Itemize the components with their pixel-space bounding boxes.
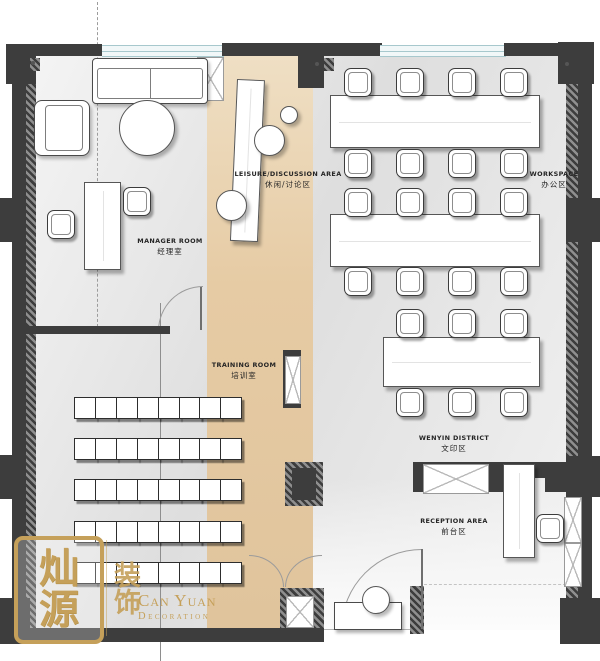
- office-chair: [448, 149, 476, 178]
- office-chair: [500, 309, 528, 338]
- office-chair: [47, 210, 75, 239]
- training-chair: [179, 562, 201, 584]
- workstation-desk-3: [383, 337, 540, 387]
- logo-wordmark: Can Yuan Decoration: [138, 592, 258, 623]
- office-chair: [396, 309, 424, 338]
- window-x: [564, 543, 582, 587]
- training-chair: [95, 397, 117, 419]
- training-chair: [137, 479, 159, 501]
- door-leaf-manager: [200, 287, 202, 330]
- door-stop-dot: [315, 62, 319, 66]
- door-leaf-reception: [421, 549, 423, 629]
- training-chair: [95, 438, 117, 460]
- label-workspace: WORKSPACE 办公区: [494, 170, 600, 190]
- office-chair: [123, 187, 151, 216]
- training-chair: [74, 397, 96, 419]
- training-chair: [158, 521, 180, 543]
- training-chair: [199, 562, 221, 584]
- label-manager-room: MANAGER ROOM 经理室: [110, 237, 230, 257]
- wall-divider-core: [292, 468, 316, 500]
- training-chair: [116, 479, 138, 501]
- training-chair: [199, 521, 221, 543]
- window-band-left: [102, 45, 224, 57]
- wall-corner-bottom-right: [560, 598, 600, 644]
- office-chair: [448, 188, 476, 217]
- boundary-dashed: [424, 584, 576, 585]
- armchair: [34, 100, 90, 156]
- office-chair: [396, 149, 424, 178]
- label-wenyin-district: WENYIN DISTRICT 文印区: [394, 434, 514, 454]
- logo-seal: 灿 源: [14, 536, 104, 644]
- wall-right-hatch: [566, 242, 578, 456]
- logo-ornament: 装饰: [106, 540, 141, 636]
- workstation-desk-1: [330, 95, 540, 148]
- training-chair: [220, 438, 242, 460]
- wall-pilaster: [0, 455, 14, 499]
- wall-segment: [222, 43, 382, 56]
- label-training-room: TRAINING ROOM 培训室: [184, 361, 304, 381]
- workstation-desk-2: [330, 214, 540, 267]
- office-chair: [448, 309, 476, 338]
- office-chair: [344, 68, 372, 97]
- training-chair: [220, 397, 242, 419]
- wall-segment: [487, 462, 503, 492]
- training-chair: [137, 397, 159, 419]
- office-chair: [500, 388, 528, 417]
- cabinet-x: [286, 596, 314, 628]
- wall-pilaster: [0, 198, 14, 242]
- training-chair: [116, 438, 138, 460]
- training-chair: [74, 479, 96, 501]
- office-chair: [536, 514, 564, 543]
- wall-manager-training: [26, 326, 170, 334]
- label-reception-area: RECEPTION AREA 前台区: [394, 517, 514, 537]
- training-chair: [116, 397, 138, 419]
- training-chair: [95, 479, 117, 501]
- round-table: [119, 100, 175, 156]
- wall-segment: [545, 462, 576, 492]
- wall-pilaster: [566, 198, 600, 242]
- training-chair: [199, 438, 221, 460]
- office-chair: [500, 267, 528, 296]
- floor-plan: MANAGER ROOM 经理室 LEISURE/DISCUSSION AREA…: [0, 0, 600, 661]
- logo-seal-char: 源: [39, 590, 79, 631]
- office-chair: [448, 267, 476, 296]
- training-chair: [74, 438, 96, 460]
- stool: [216, 190, 247, 221]
- training-chair: [179, 521, 201, 543]
- office-chair: [500, 68, 528, 97]
- office-chair: [396, 267, 424, 296]
- logo-seal-char: 灿: [39, 549, 79, 590]
- training-chair: [158, 562, 180, 584]
- office-chair: [344, 267, 372, 296]
- door-stop-dot: [565, 62, 569, 66]
- wall-segment: [413, 462, 423, 492]
- training-chair: [199, 479, 221, 501]
- training-chair: [179, 438, 201, 460]
- training-chair: [158, 479, 180, 501]
- training-chair: [179, 397, 201, 419]
- office-chair: [448, 388, 476, 417]
- logo-name: Can Yuan: [138, 592, 258, 611]
- training-chair: [158, 397, 180, 419]
- wall-hatch: [324, 58, 334, 71]
- training-chair: [179, 479, 201, 501]
- wall-pier: [298, 56, 324, 88]
- stool: [280, 106, 298, 124]
- round-side-table: [362, 586, 390, 614]
- training-chair: [158, 438, 180, 460]
- training-chair: [220, 521, 242, 543]
- training-chair: [137, 438, 159, 460]
- office-chair: [396, 188, 424, 217]
- label-leisure-area: LEISURE/DISCUSSION AREA 休闲/讨论区: [228, 170, 348, 190]
- office-chair: [396, 388, 424, 417]
- sofa: [92, 58, 208, 104]
- window-x: [564, 497, 582, 543]
- training-chair: [220, 562, 242, 584]
- office-chair: [396, 68, 424, 97]
- office-chair: [344, 149, 372, 178]
- door-stop-dot: [31, 61, 35, 65]
- logo-subtitle: Decoration: [138, 611, 258, 624]
- training-chair: [199, 397, 221, 419]
- wall-segment: [28, 44, 102, 56]
- window-band-right: [380, 45, 506, 57]
- training-chair: [220, 479, 242, 501]
- wall-segment: [280, 628, 324, 642]
- office-chair: [500, 188, 528, 217]
- printer-cabinet: [423, 464, 489, 494]
- stool: [254, 125, 285, 156]
- office-chair: [448, 68, 476, 97]
- reception-desk: [503, 464, 535, 558]
- office-chair: [344, 188, 372, 217]
